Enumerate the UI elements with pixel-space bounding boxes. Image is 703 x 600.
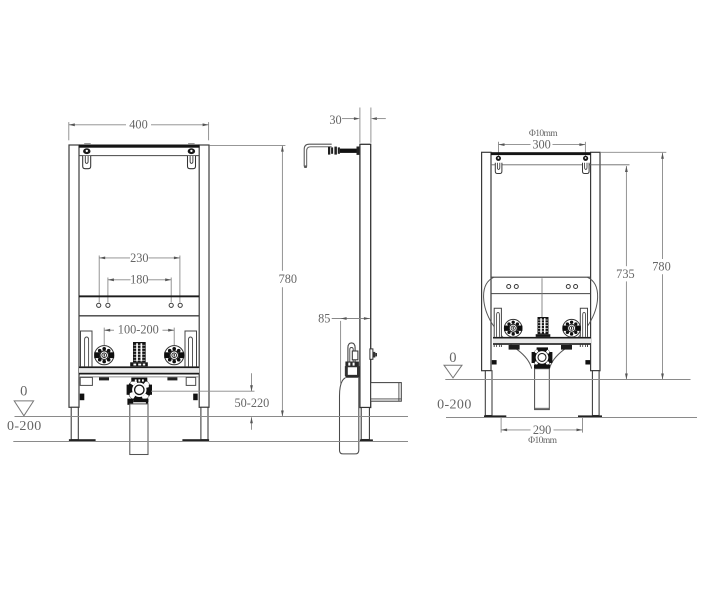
svg-text:85: 85	[318, 311, 330, 325]
svg-text:100-200: 100-200	[118, 323, 159, 337]
svg-text:735: 735	[616, 267, 634, 281]
svg-text:290: 290	[533, 423, 551, 437]
svg-text:230: 230	[130, 251, 148, 265]
svg-text:180: 180	[130, 273, 148, 287]
svg-text:400: 400	[129, 118, 147, 132]
svg-text:0: 0	[449, 350, 456, 366]
svg-text:30: 30	[329, 113, 341, 127]
svg-text:780: 780	[279, 272, 297, 286]
svg-text:0-200: 0-200	[437, 398, 472, 413]
svg-text:0-200: 0-200	[7, 419, 42, 434]
svg-text:Φ10mm: Φ10mm	[528, 436, 557, 446]
svg-text:780: 780	[652, 260, 670, 274]
svg-text:0: 0	[20, 384, 27, 400]
svg-text:300: 300	[532, 137, 550, 151]
svg-text:50-220: 50-220	[234, 396, 269, 410]
